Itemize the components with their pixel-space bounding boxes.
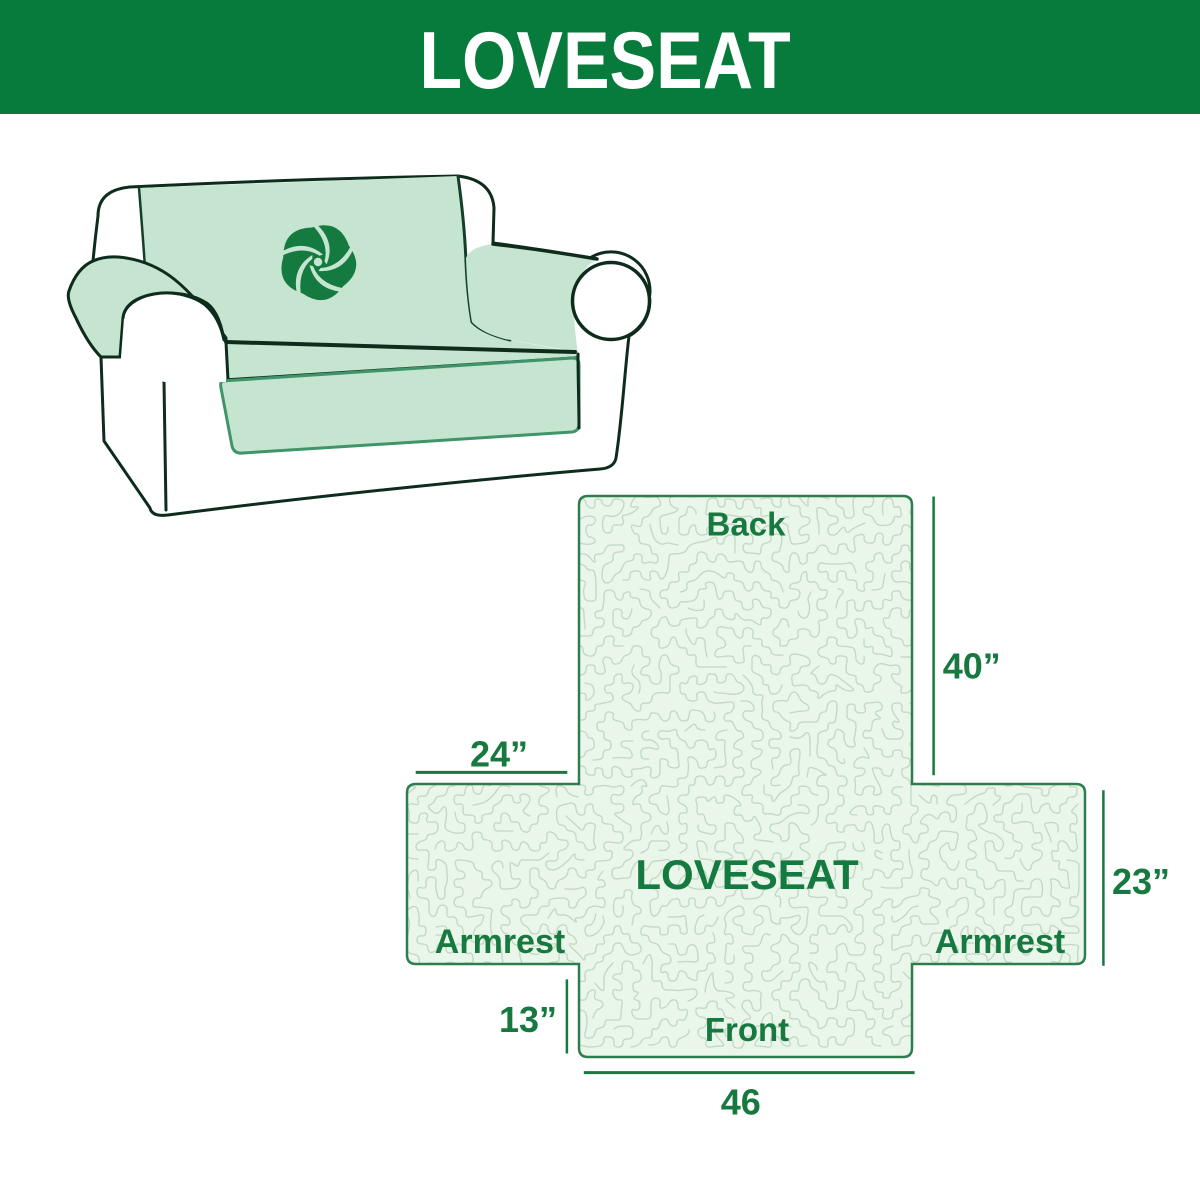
svg-text:Armrest: Armrest	[935, 923, 1065, 961]
svg-text:23”: 23”	[1112, 861, 1170, 902]
svg-text:Back: Back	[707, 506, 787, 543]
svg-text:Front: Front	[705, 1011, 789, 1048]
svg-text:40”: 40”	[943, 646, 1001, 687]
svg-text:24”: 24”	[470, 734, 528, 775]
svg-text:LOVESEAT: LOVESEAT	[635, 851, 859, 898]
svg-text:Armrest: Armrest	[435, 923, 565, 961]
svg-text:46: 46	[721, 1082, 761, 1123]
svg-text:13”: 13”	[499, 999, 557, 1040]
svg-text:LOVESEAT: LOVESEAT	[419, 15, 790, 105]
